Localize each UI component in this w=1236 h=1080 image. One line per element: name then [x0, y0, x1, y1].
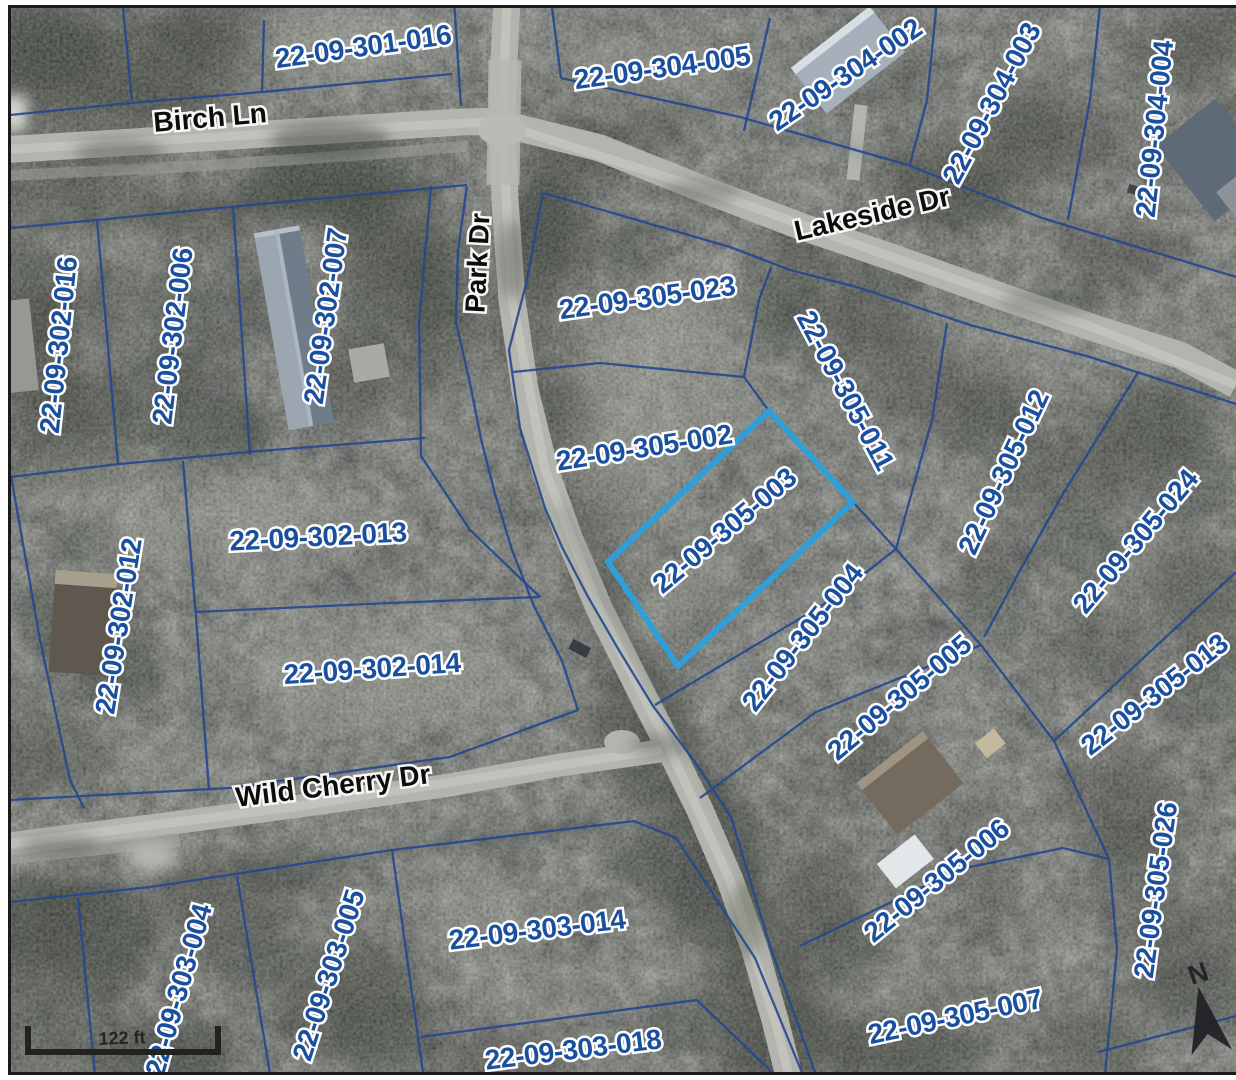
svg-text:122 ft: 122 ft — [98, 1027, 146, 1049]
svg-text:Park Dr: Park Dr — [459, 212, 495, 313]
